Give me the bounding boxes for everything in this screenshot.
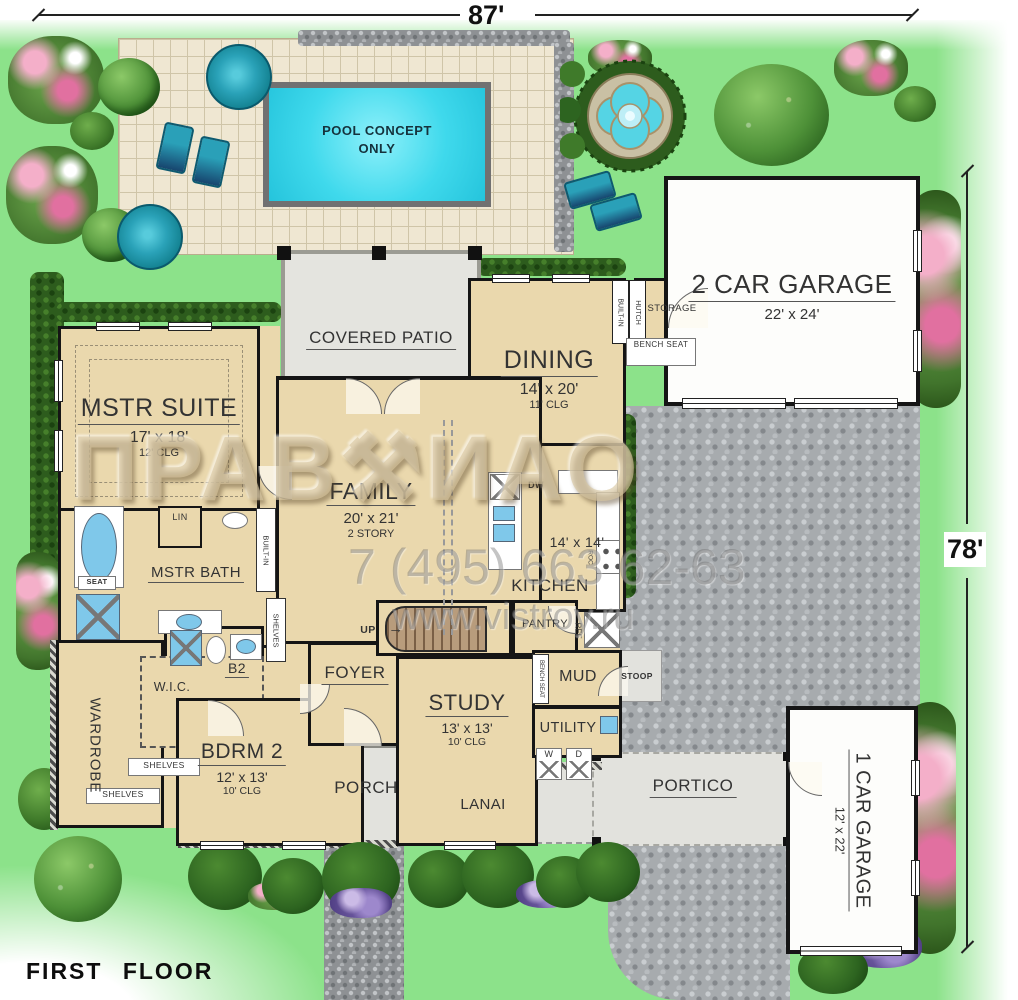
room-size-kitchen: 14' x 14' xyxy=(550,534,605,550)
room-label-2car-garage: 2 CAR GARAGE 22' x 24' xyxy=(688,270,895,323)
room-covered-patio xyxy=(281,250,481,380)
flower-bed xyxy=(8,36,104,124)
dimension-line xyxy=(966,172,968,524)
room-label-lanai: LANAI xyxy=(460,796,505,813)
utility-sink xyxy=(600,716,618,734)
shower xyxy=(76,594,120,640)
bush xyxy=(70,112,114,150)
window xyxy=(200,841,244,850)
seat-label: SEAT xyxy=(86,578,107,587)
room-label-pantry: PANTRY xyxy=(522,618,568,631)
built-in-hutch: HUTCH xyxy=(629,280,646,344)
room-label-b2: B2 xyxy=(225,660,249,678)
dishwasher xyxy=(490,474,520,500)
bathtub xyxy=(81,513,117,581)
garage-door xyxy=(794,398,898,409)
window xyxy=(444,841,496,850)
window xyxy=(913,330,922,372)
room-label-foyer: FOYER xyxy=(321,663,388,685)
dishwasher-label: DW xyxy=(528,480,544,490)
room-label-mud: MUD xyxy=(559,668,597,686)
shelves-cabinet: SHELVES xyxy=(266,598,286,662)
pool-label-line1: POOL CONCEPT xyxy=(269,122,485,140)
patio-umbrella xyxy=(206,44,272,110)
sink xyxy=(176,614,202,630)
column-post xyxy=(277,246,291,260)
patio-umbrella xyxy=(117,204,183,270)
dimension-line xyxy=(38,14,460,16)
toilet xyxy=(222,512,248,529)
kitchen-sink xyxy=(493,506,515,521)
window xyxy=(913,230,922,272)
column-post xyxy=(468,246,482,260)
room-portico xyxy=(592,752,792,846)
room-label-mstr-bath: MSTR BATH xyxy=(148,564,244,583)
stone-border xyxy=(298,30,570,46)
refrigerator-label: REF xyxy=(572,612,584,648)
bush xyxy=(576,842,640,902)
room-label-wic: W.I.C. xyxy=(154,680,190,694)
dimension-right-label: 78' xyxy=(944,532,986,567)
room-study xyxy=(396,656,538,846)
bench-seat: BENCH SEAT xyxy=(532,654,549,704)
sink xyxy=(236,639,256,654)
flower-bed xyxy=(834,40,908,96)
dimension-top-label: 87' xyxy=(468,0,504,31)
window xyxy=(492,274,530,283)
kitchen-sink xyxy=(493,524,515,542)
room-label-covered-patio: COVERED PATIO xyxy=(306,328,456,350)
room-label-portico: PORTICO xyxy=(650,776,737,798)
bush xyxy=(262,858,324,914)
room-label-stoop: STOOP xyxy=(621,672,653,682)
window xyxy=(282,841,326,850)
room-label-1car-garage: 1 CAR GARAGE 12' x 22' xyxy=(786,706,918,954)
room-label-utility: UTILITY xyxy=(540,720,597,737)
dimension-line xyxy=(966,578,968,948)
window xyxy=(96,322,140,331)
kitchen-counter xyxy=(558,470,618,494)
dimension-line xyxy=(535,14,912,16)
floor-plan-sheet: POOL CONCEPT ONLY xyxy=(0,0,1018,1000)
ceiling-break xyxy=(443,420,445,635)
garage-door xyxy=(682,398,786,409)
ceiling-break xyxy=(451,420,453,635)
shower xyxy=(170,630,202,666)
bush xyxy=(894,86,936,122)
room-label-mstr-suite: MSTR SUITE 17' x 18' 12' CLG xyxy=(78,394,240,460)
tree xyxy=(98,58,160,116)
hedge xyxy=(56,302,282,322)
window xyxy=(54,360,63,402)
room-label-kitchen: KITCHEN xyxy=(511,576,588,596)
up-label: UP xyxy=(360,624,375,636)
room-label-study: STUDY 13' x 13' 10' CLG xyxy=(425,690,508,748)
window xyxy=(54,430,63,472)
column-post xyxy=(372,246,386,260)
refrigerator xyxy=(584,612,620,648)
sheet-title: FIRST FLOOR xyxy=(26,958,213,985)
bush xyxy=(408,850,470,908)
flower-bed xyxy=(330,888,392,918)
linen-label: LIN xyxy=(172,512,187,522)
driveway xyxy=(604,706,790,756)
room-label-wardrobe: WARDROBE xyxy=(60,660,130,830)
pool-label-line2: ONLY xyxy=(269,140,485,158)
toilet xyxy=(206,636,226,664)
room-label-dining: DINING 14' x 20' 11' CLG xyxy=(501,346,598,412)
room-label-bdrm2: BDRM 2 12' x 13' 10' CLG xyxy=(198,740,286,797)
built-in-hutch: BUILT-IN xyxy=(612,280,629,344)
tree xyxy=(34,836,122,922)
fountain xyxy=(560,52,696,184)
window xyxy=(552,274,590,283)
bench-seat-label: BENCH SEAT xyxy=(633,340,689,350)
room-label-storage: STORAGE xyxy=(647,304,696,315)
dryer-label: D xyxy=(576,749,583,759)
built-in-cabinet: BUILT-IN xyxy=(256,508,276,592)
pool: POOL CONCEPT ONLY xyxy=(263,82,491,207)
window xyxy=(168,322,212,331)
shelves-label: SHELVES xyxy=(143,761,184,771)
washer-label: W xyxy=(545,749,554,759)
room-label-porch: PORCH xyxy=(334,778,397,798)
tree xyxy=(714,64,829,166)
room-label-family: FAMILY 20' x 21' 2 STORY xyxy=(326,478,415,540)
up-arrow-icon: → xyxy=(388,620,403,637)
